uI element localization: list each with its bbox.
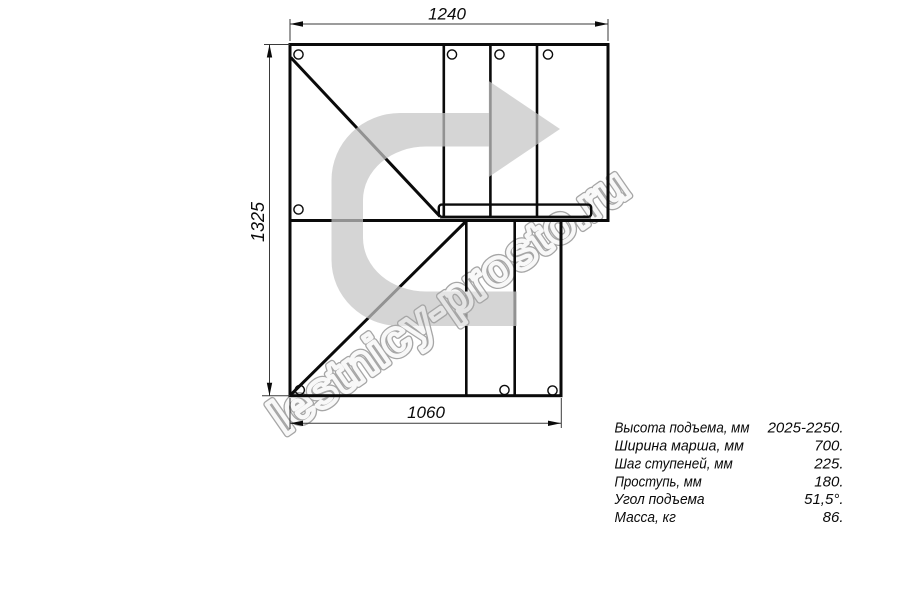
svg-text:Высота подъема, мм: Высота подъема, мм [615,420,750,437]
svg-text:2025-2250.: 2025-2250. [767,420,844,437]
svg-text:1325: 1325 [248,201,268,242]
svg-text:Проступь, мм: Проступь, мм [615,473,702,490]
svg-text:Шаг ступеней, мм: Шаг ступеней, мм [615,455,733,472]
svg-text:51,5°.: 51,5°. [804,491,843,508]
svg-text:86.: 86. [823,509,844,526]
svg-text:225.: 225. [813,455,843,472]
svg-text:Ширина марша, мм: Ширина марша, мм [615,437,744,454]
svg-text:1240: 1240 [428,5,466,24]
svg-text:Угол подъема: Угол подъема [614,491,705,508]
svg-text:1060: 1060 [407,403,445,422]
svg-text:Масса, кг: Масса, кг [615,509,677,526]
svg-text:700.: 700. [814,437,843,454]
svg-text:180.: 180. [814,473,843,490]
